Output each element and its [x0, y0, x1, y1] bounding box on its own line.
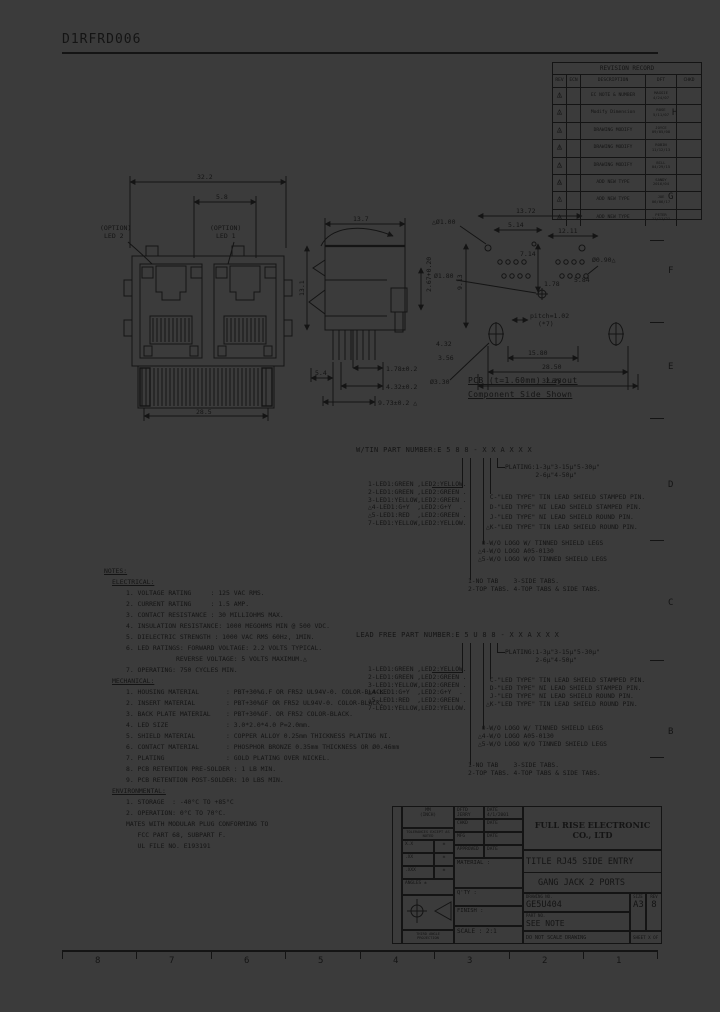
revision-table-title: REVISION RECORD	[553, 63, 701, 75]
zone-letter-b: B	[668, 727, 673, 737]
tol-r1-value: ±	[434, 840, 454, 853]
zone-tick	[650, 540, 664, 541]
dim-pcb-1-78: 1.78	[544, 280, 560, 288]
zone-number-5: 5	[318, 956, 323, 966]
pn-connector	[490, 643, 491, 679]
mechanical-notes: 1. HOUSING MATERIAL : PBT+30%G.F OR FR52…	[126, 687, 409, 786]
zone-letter-c: C	[668, 598, 673, 608]
dim-pcb-5-14: 5.14	[508, 221, 524, 229]
environmental-notes: 1. STORAGE : -40°C TO +85°C 2. OPERATION…	[126, 797, 409, 852]
dim-side-b3: 4.32±0.2	[386, 383, 417, 391]
revision-row: △3 DRAWING MODIFY JOYCE 09/05/08	[553, 123, 701, 140]
pcb-layout-drawing: 13.72 5.14 12.11 △Ø1.00 7.14 1.78 Ø1.80 …	[430, 204, 647, 396]
dim-pcb-hole2: Ø1.80	[434, 272, 454, 280]
drawing-title-line1: TITLE RJ45 SIDE ENTRY LEAD	[523, 850, 662, 872]
rev-value: 8	[651, 900, 656, 910]
company-name: FULL RISE ELECTRONIC CO., LTD	[523, 806, 662, 850]
zone-letter-d: D	[668, 480, 673, 490]
tin-part-number-header: W/TIN PART NUMBER:E 5 8 8 - X X A X X X	[356, 446, 532, 454]
dim-pcb-hole3: Ø0.90△	[592, 256, 616, 264]
chkd-cell: CHKD	[454, 819, 484, 832]
zone-letter-g: G	[668, 192, 673, 202]
ruler-tick	[136, 950, 137, 959]
ruler-tick	[285, 950, 286, 959]
approved-date-cell: DATE	[484, 845, 523, 858]
rev-flag-icon: △6	[554, 177, 566, 188]
qty-cell: Q'TY :	[454, 888, 523, 906]
tol-r3-value: ±	[434, 866, 454, 879]
size-cell: SIZE A3	[630, 893, 646, 931]
zone-number-1: 1	[616, 956, 621, 966]
ruler-tick	[211, 950, 212, 959]
leadfree-tab-options: 1-NO TAB 3-SIDE TABS. 2-TOP TABS. 4-TOP …	[468, 762, 601, 778]
leadfree-plating-options: PLATING:1-3μ"3-15μ"5-30μ" 2-6μ"4-50μ"	[505, 649, 600, 665]
pn-connector	[470, 643, 471, 765]
drawing-title-line2: GANG JACK 2 PORTS	[523, 872, 662, 893]
dim-side-b2: 1.78±0.2	[386, 365, 417, 373]
label-led2: LED 2	[104, 232, 124, 240]
zone-number-4: 4	[393, 956, 398, 966]
mfg-cell: MFG	[454, 832, 484, 845]
leadfree-logo-options: 0-W/O LOGO W/ TINNED SHIELD LEGS △4-W/O …	[478, 725, 607, 749]
revision-row: △6 ADD NEW TYPE SANDY 2016/04	[553, 175, 701, 192]
rev-flag-icon: △2	[554, 107, 566, 118]
part-no-value: SEE NOTE	[526, 919, 565, 928]
tin-tab-options: 1-NO TAB 3-SIDE TABS. 2-TOP TABS. 4-TOP …	[468, 578, 601, 594]
zone-number-2: 2	[542, 956, 547, 966]
label-led1: LED 1	[216, 232, 236, 240]
units-cell: MM (INCH)	[402, 806, 454, 828]
tin-logo-options: 0-W/O LOGO W/ TINNED SHIELD LEGS △4-W/O …	[478, 540, 607, 564]
sheet-cell: SHEET X OF Y	[630, 931, 662, 944]
dim-pcb-15-80: 15.80	[528, 349, 548, 357]
mechanical-title: MECHANICAL:	[112, 676, 409, 687]
zone-letter-e: E	[668, 362, 673, 372]
pcb-caption-line1: PCB (t=1.60mm) Layout	[468, 376, 578, 385]
tol-r3-label: .XXX	[402, 866, 434, 879]
pn-connector	[470, 458, 471, 580]
dim-side-left: 13.1	[298, 280, 306, 296]
zone-number-6: 6	[244, 956, 249, 966]
ruler-tick	[434, 950, 435, 959]
dim-side-top: 13.7	[353, 215, 369, 223]
drawing-no-value: GE5U404	[526, 900, 562, 910]
leadfree-led-type-options: C-"LED TYPE" TIN LEAD SHIELD STAMPED PIN…	[486, 677, 645, 709]
revision-table-header: REV ECN DESCRIPTION DFT CHKD	[553, 75, 701, 88]
third-angle-symbol-cell	[402, 895, 454, 930]
zone-number-7: 7	[169, 956, 174, 966]
size-value: A3	[633, 900, 644, 910]
zone-tick	[650, 240, 664, 241]
dim-side-b1: 5.4	[315, 369, 327, 377]
rev-flag-icon: △5	[554, 160, 566, 171]
material-cell: MATERIAL :	[454, 858, 523, 888]
zone-number-8: 8	[95, 956, 100, 966]
revision-row: △1 EC NOTE & NUMBER MAGGIE 4/24/07	[553, 88, 701, 105]
zone-tick	[650, 660, 664, 661]
drawing-no-cell: DRAWING NO. GE5U404	[523, 893, 630, 912]
rev-flag-icon: △3	[554, 125, 566, 136]
tol-r1-label: X.X	[402, 840, 434, 853]
chkd-date-cell: DATE	[484, 819, 523, 832]
dim-pcb-4-32: 4.32	[436, 340, 452, 348]
notes-title: NOTES:	[104, 566, 409, 577]
dim-pcb-hole4: Ø3.30	[430, 378, 450, 386]
dim-front-led: 5.8	[216, 193, 228, 201]
side-view-drawing: 13.7 13.1 2.67+0.20 5.4 1.78±0.2 4.32±0.…	[295, 210, 445, 412]
tin-led-type-options: C-"LED TYPE" TIN LEAD SHIELD STAMPED PIN…	[486, 493, 645, 533]
third-angle-projection-icon	[405, 897, 453, 925]
dim-pcb-9-13: 9.13	[456, 274, 464, 290]
tol-r2-value: ±	[434, 853, 454, 866]
engineering-drawing-sheet: D1RFRD006 REVISION RECORD REV ECN DESCRI…	[0, 0, 720, 1012]
do-not-scale-cell: DO NOT SCALE DRAWING	[523, 931, 630, 944]
label-led1-option: (OPTION)	[210, 224, 241, 232]
top-border-line	[62, 52, 658, 54]
dim-pcb-12-11: 12.11	[558, 227, 578, 235]
electrical-notes: 1. VOLTAGE RATING : 125 VAC RMS. 2. CURR…	[126, 588, 409, 676]
ruler-tick	[657, 950, 658, 959]
dim-pcb-5-84: 5.84	[574, 276, 590, 284]
dim-front-bottom: 28.5	[196, 408, 212, 416]
side-strip-label: DETACHED NOTE	[392, 854, 393, 893]
third-angle-label: THIRD ANGLE PROJECTION	[402, 930, 454, 944]
dim-pcb-pitch-count: (*7)	[538, 320, 554, 328]
zone-number-3: 3	[467, 956, 472, 966]
front-view-drawing: 32.2 5.8 28.5 (OPTION) LED 2 (OPTION) LE…	[98, 166, 310, 424]
zone-tick	[650, 757, 664, 758]
revision-row: △5 DRAWING MODIFY BILL 04/29/15	[553, 158, 701, 175]
dftd-date-cell: DATE 4/1/2001	[484, 806, 523, 819]
mfg-date-cell: DATE	[484, 832, 523, 845]
tol-r2-label: .XX	[402, 853, 434, 866]
label-led2-option: (OPTION)	[100, 224, 131, 232]
dim-pcb-28-50: 28.50	[542, 363, 562, 371]
part-no-cell: PART NO. SEE NOTE	[523, 912, 630, 931]
revision-record-table: REVISION RECORD REV ECN DESCRIPTION DFT …	[552, 62, 702, 220]
pn-connector	[483, 643, 484, 729]
angles-cell: ANGLES ±	[402, 879, 454, 895]
pn-connector	[490, 458, 491, 494]
ruler-tick	[360, 950, 361, 959]
dftd-cell: DFTD JERRY	[454, 806, 484, 819]
finish-cell: FINISH :	[454, 906, 523, 926]
pn-connector	[483, 458, 484, 544]
electrical-title: ELECTRICAL:	[112, 577, 409, 588]
tin-led-color-options: 1-LED1:GREEN ,LED2:YELLOW. 2-LED1:GREEN …	[368, 481, 467, 528]
zone-tick	[650, 418, 664, 419]
dim-pcb-pitch: pitch=1.02	[530, 312, 569, 320]
zone-letter-f: F	[668, 266, 673, 276]
rev-cell: REV 8	[646, 893, 662, 931]
tin-plating-options: PLATING:1-3μ"3-15μ"5-30μ" 2-6μ"4-50μ"	[505, 464, 600, 480]
pn-connector	[497, 652, 505, 653]
pn-connector	[497, 467, 505, 468]
scale-cell: SCALE : 2:1	[454, 926, 523, 944]
dim-pcb-7-14: 7.14	[520, 250, 536, 258]
dim-pcb-13-72: 13.72	[516, 207, 536, 215]
tolerance-note: TOLERANCES EXCEPT AS NOTED	[402, 828, 454, 840]
dim-pcb-hole1: △Ø1.00	[432, 218, 456, 226]
rev-flag-icon: △4	[554, 142, 566, 153]
dim-front-width: 32.2	[197, 173, 213, 181]
ruler-tick	[583, 950, 584, 959]
notes-section: NOTES: ELECTRICAL: 1. VOLTAGE RATING : 1…	[104, 566, 409, 852]
approved-cell: APPROVED	[454, 845, 484, 858]
environmental-title: ENVIRONMENTAL:	[112, 786, 409, 797]
zone-letter-h: H	[672, 108, 677, 118]
rev-flag-icon: △1	[554, 90, 566, 101]
title-block-side-strip: DETACHED NOTE	[392, 806, 402, 944]
revision-row: △2 Modify Dimension ROSE 5/11/07	[553, 105, 701, 122]
ruler-tick	[509, 950, 510, 959]
zone-tick	[650, 322, 664, 323]
doc-number: D1RFRD006	[62, 32, 141, 47]
dim-pcb-3-56: 3.56	[438, 354, 454, 362]
revision-row: △4 DRAWING MODIFY ROBIN 11/12/13	[553, 140, 701, 157]
title-block: DETACHED NOTE MM (INCH) TOLERANCES EXCEP…	[392, 806, 662, 944]
dim-side-b4: 9.73±0.2 △	[378, 399, 417, 407]
ruler-tick	[62, 950, 63, 959]
pcb-caption-line2: Component Side Shown	[468, 390, 572, 399]
